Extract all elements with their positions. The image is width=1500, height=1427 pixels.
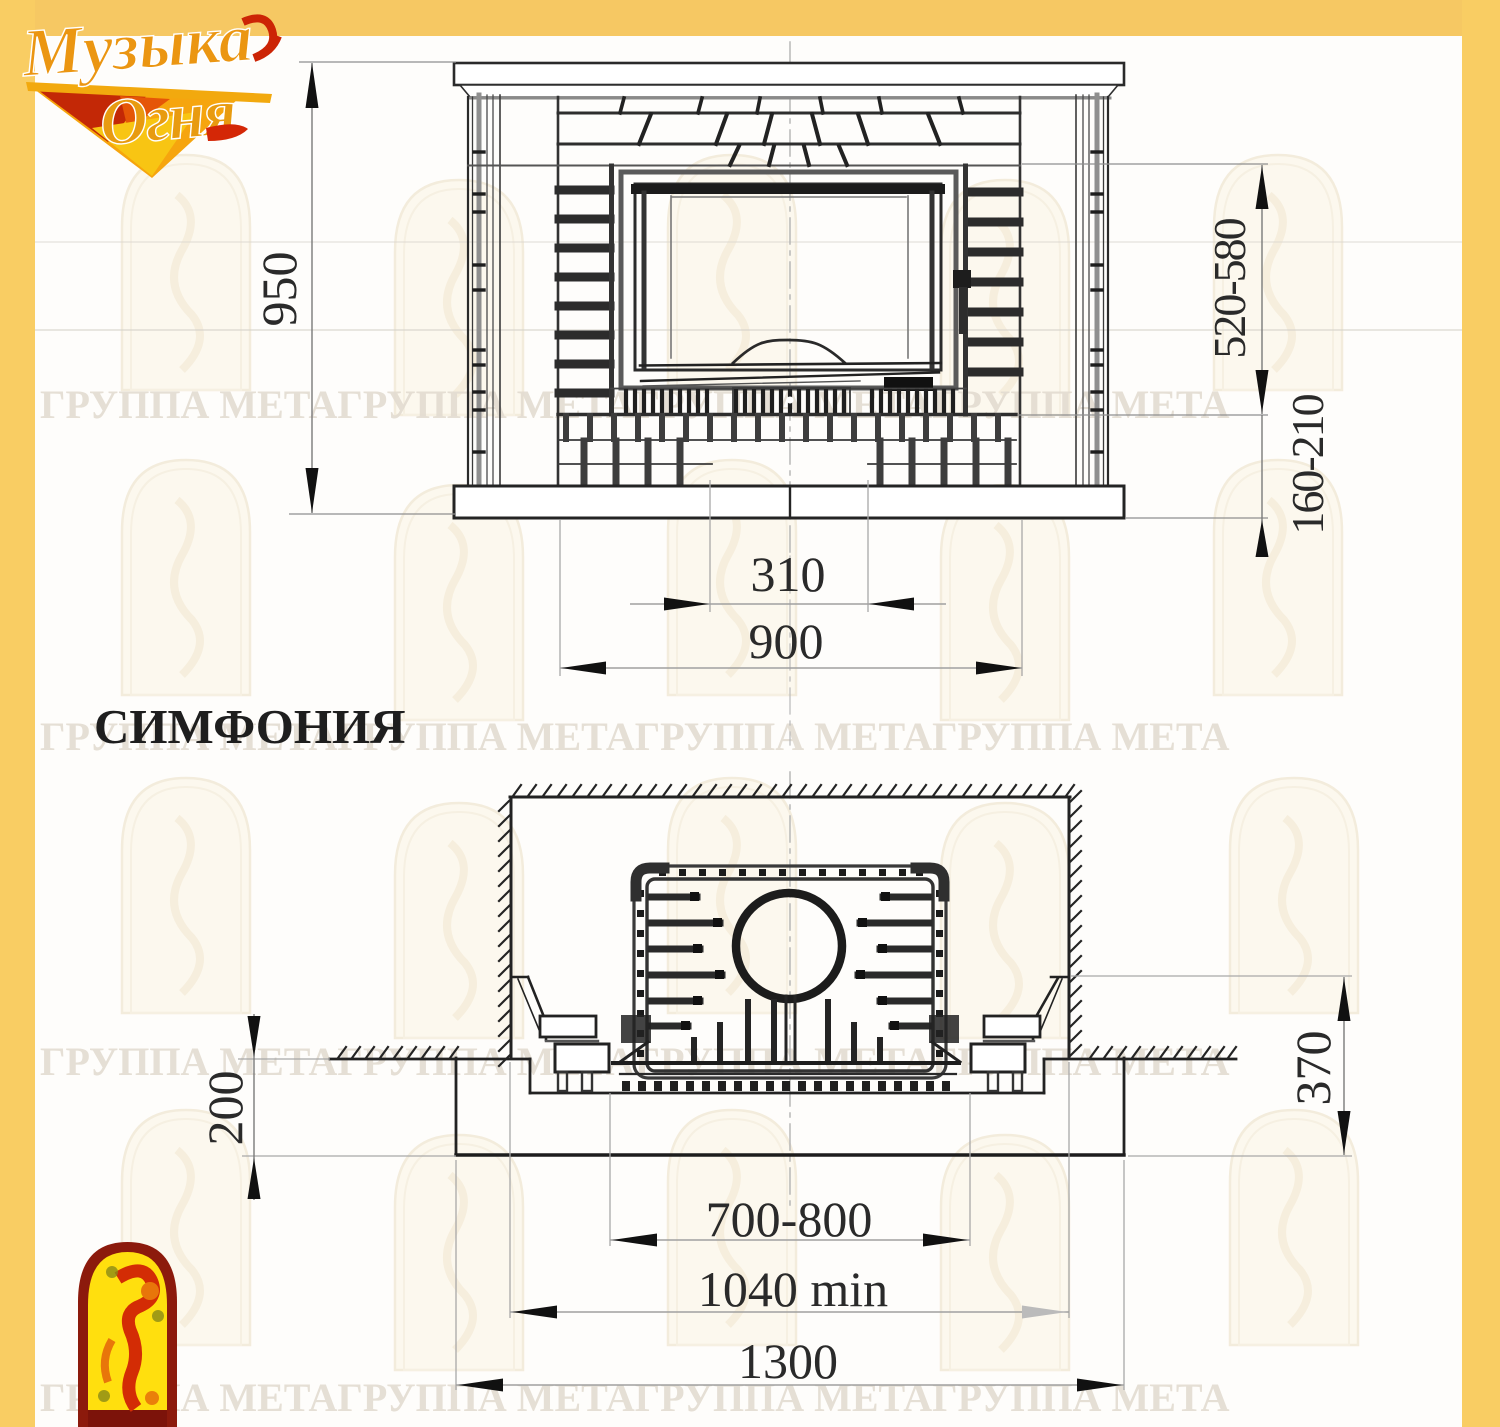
svg-text:Огня: Огня: [97, 75, 238, 159]
svg-text:СИМФОНИЯ: СИМФОНИЯ: [94, 699, 406, 754]
svg-text:1300: 1300: [738, 1333, 838, 1389]
svg-text:370: 370: [1285, 1031, 1341, 1106]
svg-text:950: 950: [251, 252, 307, 327]
svg-text:900: 900: [749, 613, 824, 669]
svg-text:ГРУППА МЕТАГРУППА МЕТАГРУППА М: ГРУППА МЕТАГРУППА МЕТАГРУППА МЕТАГРУППА …: [40, 1375, 1230, 1420]
svg-text:520-580: 520-580: [1204, 218, 1255, 358]
svg-text:310: 310: [751, 546, 826, 602]
svg-text:200: 200: [197, 1071, 253, 1146]
svg-text:700-800: 700-800: [706, 1191, 873, 1247]
svg-text:Музыка: Музыка: [19, 0, 255, 91]
svg-text:160-210: 160-210: [1282, 394, 1333, 534]
svg-text:1040 min: 1040 min: [698, 1261, 888, 1317]
